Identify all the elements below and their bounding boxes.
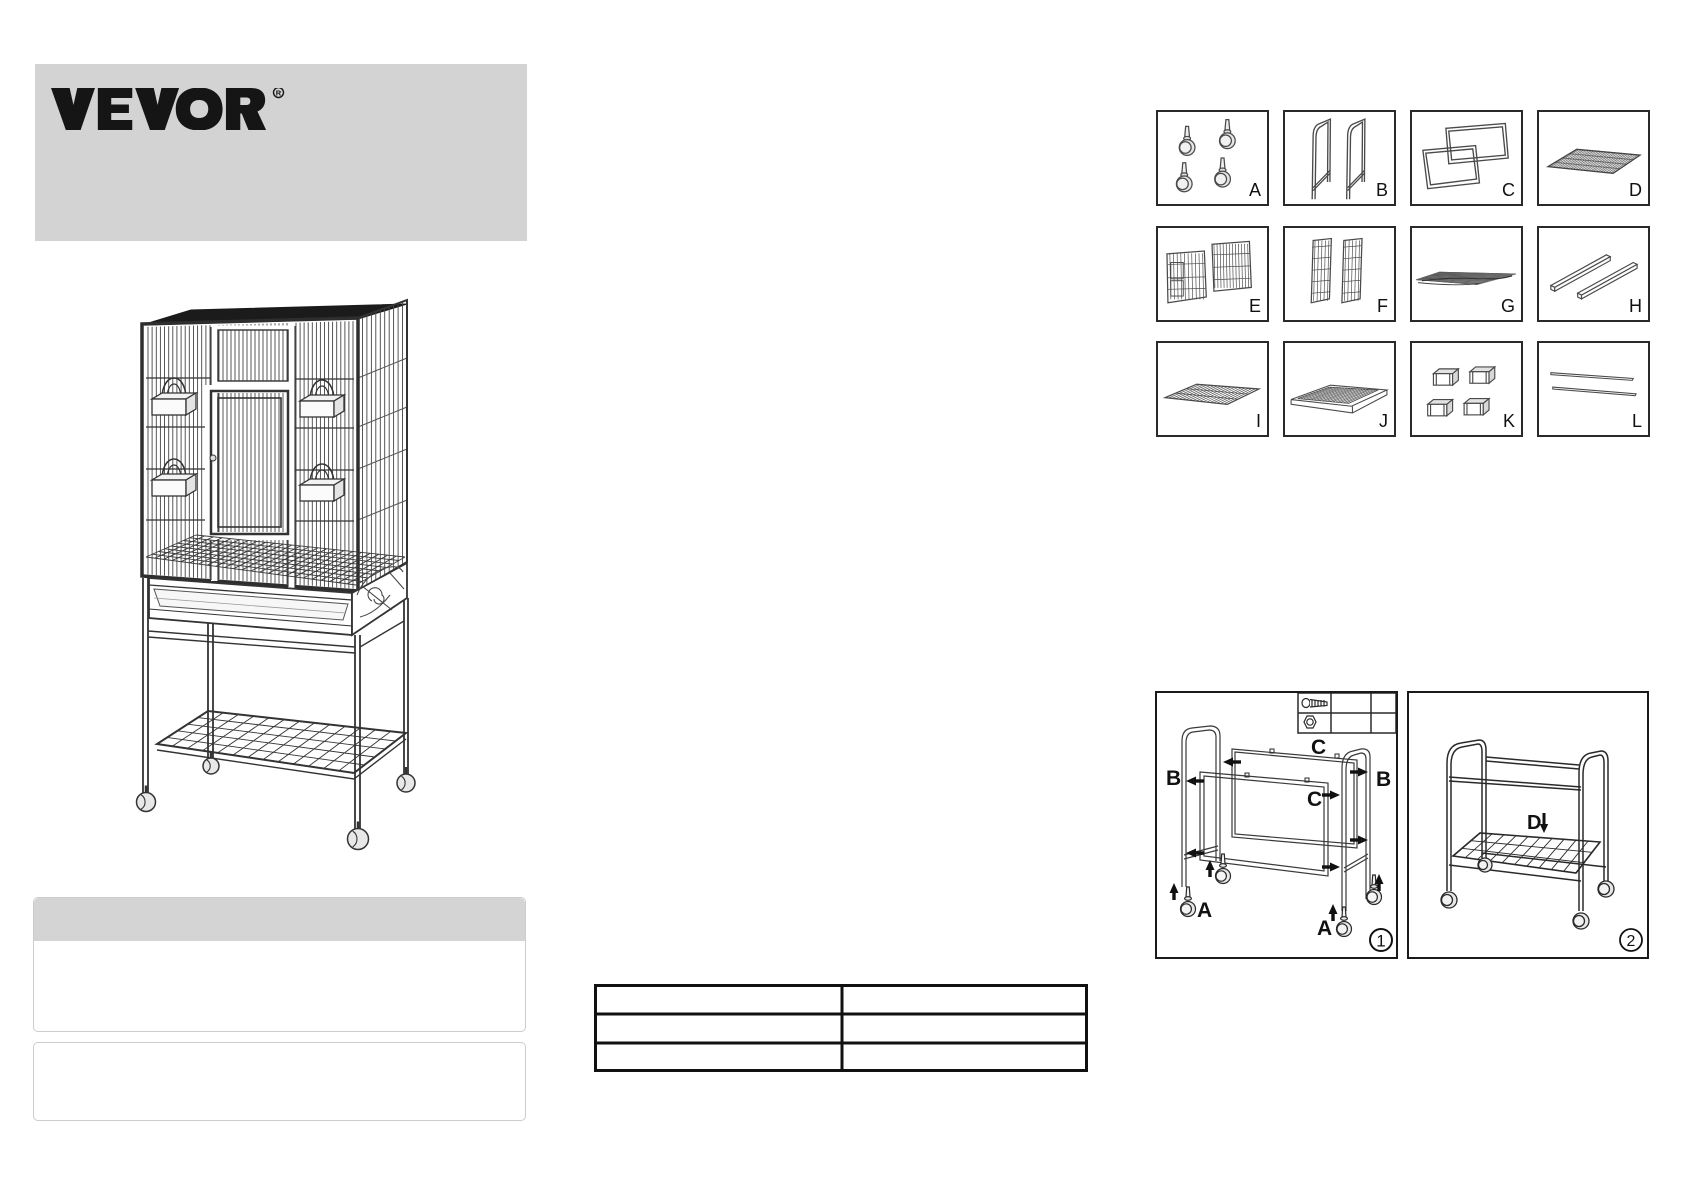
svg-text:C: C <box>1307 788 1322 811</box>
svg-text:B: B <box>1376 768 1391 791</box>
svg-text:1: 1 <box>1376 932 1385 951</box>
svg-text:2: 2 <box>1627 933 1636 950</box>
svg-text:C: C <box>1311 736 1326 759</box>
svg-text:B: B <box>1166 767 1181 790</box>
svg-text:A: A <box>1317 917 1332 940</box>
svg-text:A: A <box>1197 899 1212 922</box>
svg-text:R: R <box>276 89 282 98</box>
svg-text:D: D <box>1527 812 1541 834</box>
